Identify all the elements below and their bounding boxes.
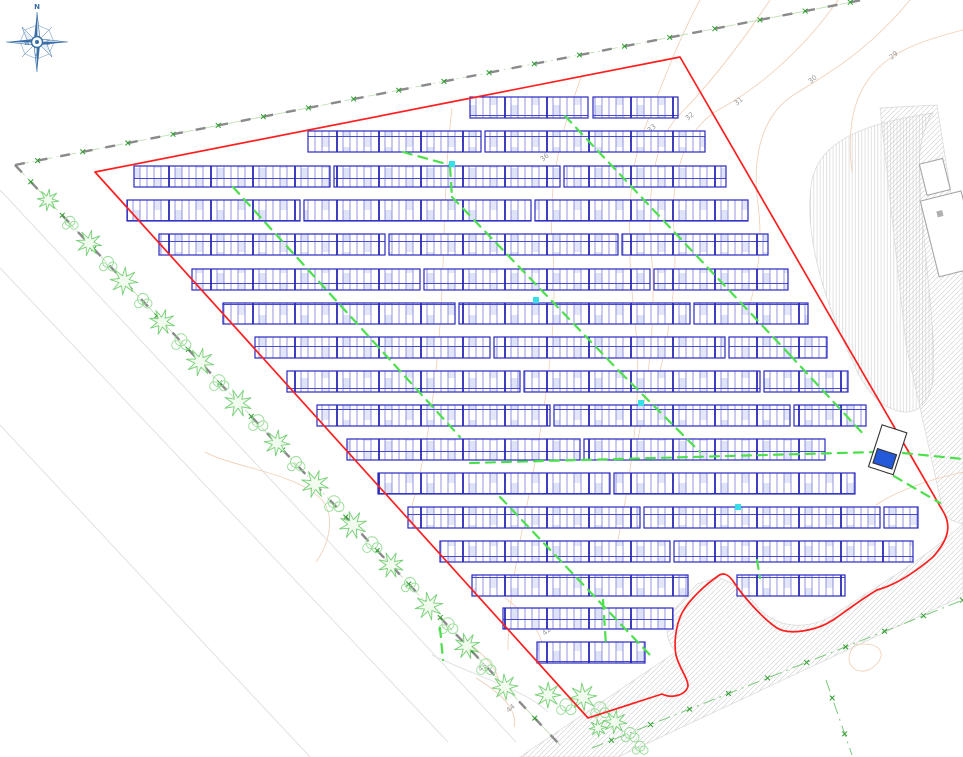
- fence-centerline: [826, 680, 852, 755]
- panel-row-segment: [485, 131, 705, 152]
- compass-label-north: N: [34, 3, 40, 11]
- tree-canopy: [535, 682, 561, 708]
- combiner-box-marker: [449, 161, 455, 167]
- site-plan-canvas[interactable]: 293031323336424344 N S W E: [0, 0, 963, 757]
- tree-canopy: [640, 746, 648, 754]
- contour-elevation-label: 29: [888, 50, 900, 62]
- panel-row-segment: [389, 234, 618, 255]
- transformer-station: [869, 425, 907, 475]
- panel-row-segment: [794, 405, 866, 426]
- tree-canopy: [181, 340, 191, 350]
- combiner-box-marker: [735, 504, 741, 510]
- panel-row-segment: [134, 166, 330, 187]
- panel-row-segment: [470, 97, 588, 118]
- panel-row-segment: [472, 575, 688, 596]
- panel-row-segment: [304, 200, 531, 221]
- contour-elevation-label: 44: [505, 702, 517, 714]
- panel-row-segment: [192, 269, 420, 290]
- panel-row-segment: [347, 439, 580, 460]
- compass-rose: N S W E: [6, 3, 68, 72]
- panel-row-segment: [459, 303, 690, 324]
- panel-row-segment: [654, 269, 788, 290]
- contour-elevation-label: 31: [733, 96, 745, 108]
- panel-row-segment: [622, 234, 768, 255]
- panel-row-segment: [584, 439, 825, 460]
- panel-row-segment: [408, 507, 640, 528]
- panel-row-segment: [524, 371, 760, 392]
- panel-row-segment: [564, 166, 726, 187]
- panel-row-segment: [223, 303, 455, 324]
- contour-line: [205, 452, 330, 562]
- combiner-box-marker: [533, 297, 539, 303]
- panel-row-segment: [440, 541, 670, 562]
- compass-label-east: E: [46, 40, 50, 47]
- panel-row-segment: [535, 200, 748, 221]
- tree-canopy: [448, 624, 458, 634]
- panel-field: [127, 97, 918, 663]
- generated-plan-layers: 293031323336424344: [0, 0, 963, 757]
- panel-row-segment: [308, 131, 481, 152]
- panel-row-segment: [159, 234, 385, 255]
- panel-row-segment: [737, 575, 845, 596]
- solar-site-plan-drawing: 293031323336424344 N S W E: [0, 0, 963, 757]
- panel-row-segment: [729, 337, 827, 358]
- compass-hub-dot: [35, 40, 39, 44]
- fence-x-mark: [842, 731, 847, 736]
- panel-row-segment: [334, 166, 560, 187]
- compass-label-south: S: [35, 53, 39, 60]
- panel-row-segment: [378, 473, 610, 494]
- panel-row-segment: [537, 642, 645, 663]
- panel-row-segment: [674, 541, 913, 562]
- dc-cable-line: [403, 152, 450, 165]
- panel-row-segment: [494, 337, 725, 358]
- panel-row-segment: [317, 405, 550, 426]
- combiner-box-marker: [638, 400, 644, 406]
- contour-elevation-label: 30: [807, 74, 819, 86]
- curb-line: [0, 425, 310, 757]
- panel-row-segment: [764, 371, 848, 392]
- compass-label-west: W: [24, 40, 30, 47]
- contour-elevation-label: 36: [539, 151, 551, 163]
- panel-row-segment: [884, 507, 918, 528]
- panel-row-segment: [614, 473, 855, 494]
- contour-line: [849, 644, 881, 671]
- panel-row-segment: [503, 608, 673, 629]
- panel-row-segment: [127, 200, 300, 221]
- panel-row-segment: [287, 371, 520, 392]
- panel-row-segment: [593, 97, 678, 118]
- dc-cable-line: [440, 628, 443, 660]
- panel-row-segment: [644, 507, 880, 528]
- tree-canopy: [569, 683, 597, 711]
- contour-elevation-label: 32: [684, 111, 696, 123]
- fence-x-mark: [830, 696, 835, 701]
- panel-row-segment: [424, 269, 650, 290]
